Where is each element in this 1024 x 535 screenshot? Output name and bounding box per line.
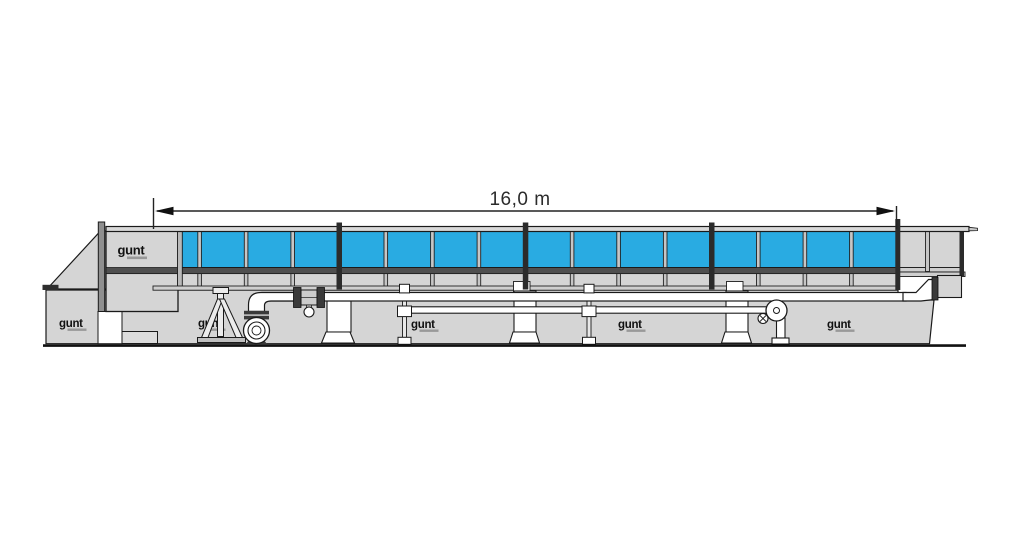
outlet-flange: [932, 278, 938, 301]
flume-diagram: gunt gunt gunt gunt gunt gunt: [0, 0, 1024, 535]
glass-post: [570, 232, 574, 291]
glass-post: [244, 232, 248, 291]
outlet-rail: [898, 268, 964, 273]
gunt-logo: gunt: [411, 319, 439, 332]
drain-valve: [304, 307, 314, 317]
flume-drawing: gunt gunt gunt gunt gunt gunt: [0, 0, 1024, 535]
outlet-tank-panels: [898, 232, 964, 268]
base-notch: [98, 312, 122, 344]
gunt-logo: gunt: [618, 319, 646, 332]
blower-foot: [772, 338, 789, 344]
clamp-foot: [398, 337, 411, 344]
outlet-elbow-pipe: [903, 280, 935, 302]
gunt-logo-text: gunt: [827, 319, 851, 331]
module-post: [709, 223, 715, 290]
outlet-tank: [898, 230, 965, 302]
support-column: [322, 301, 355, 343]
gunt-logo: gunt: [827, 319, 855, 332]
channel-bed-frame: [106, 268, 898, 274]
gunt-logo-text: gunt: [59, 318, 83, 330]
gunt-logo-underline: [627, 330, 646, 332]
gunt-logo-underline: [127, 257, 147, 260]
arrowhead-left: [155, 207, 174, 215]
module-post: [337, 223, 343, 290]
column-foot: [322, 332, 355, 343]
gunt-logo-underline: [68, 329, 87, 331]
inlet-box-post: [178, 232, 183, 291]
top-rail-lip: [969, 227, 978, 231]
glass-post: [850, 232, 854, 291]
outlet-post: [926, 232, 930, 272]
coupling-flange: [317, 288, 325, 308]
gunt-logo-text: gunt: [411, 319, 435, 331]
main-return-pipe: [262, 293, 906, 302]
dimension-label: 16,0 m: [489, 189, 550, 210]
gunt-logo: gunt: [59, 318, 87, 331]
gunt-logo-text: gunt: [618, 319, 642, 331]
glass-post: [384, 232, 388, 291]
glass-post: [291, 232, 295, 291]
top-rail: [106, 227, 978, 232]
hanger-rod: [587, 316, 591, 338]
outlet-chamber: [938, 276, 962, 298]
glass-post: [477, 232, 481, 291]
pump-hub: [252, 326, 261, 335]
clamp-foot: [583, 337, 596, 344]
glass-post: [617, 232, 621, 291]
coupling-flange: [294, 288, 302, 308]
module-post: [523, 223, 529, 290]
top-rail-bar: [106, 227, 969, 232]
rail-clamp: [400, 284, 410, 293]
inlet-standpipe: [98, 222, 104, 312]
channel-end-post: [895, 219, 900, 290]
blower-hub: [774, 308, 780, 314]
pipe-clamp: [582, 306, 596, 317]
gunt-logo-underline: [420, 330, 439, 332]
inlet-plinth: [122, 332, 158, 344]
glass-post: [803, 232, 807, 291]
glass-post: [198, 232, 202, 291]
glass-post: [431, 232, 435, 291]
arrowhead-right: [877, 207, 896, 215]
gunt-logo-underline: [836, 330, 855, 332]
column-head: [727, 282, 744, 292]
pipe-clamp: [398, 306, 412, 317]
column-foot: [510, 332, 540, 343]
pump-flange: [244, 311, 269, 315]
outlet-end-post: [960, 230, 965, 277]
gunt-logo: gunt: [118, 243, 148, 260]
inlet-sloped-wall: [47, 231, 106, 289]
rail-clamp: [584, 284, 594, 293]
hanger-rod: [403, 316, 407, 338]
column-foot: [722, 332, 752, 343]
slope-eave: [43, 285, 59, 290]
glass-post: [757, 232, 761, 291]
glass-post: [663, 232, 667, 291]
tripod-base-plate: [198, 338, 246, 343]
tripod-top-plate: [213, 288, 229, 294]
column-stem: [327, 301, 351, 332]
gunt-logo-text: gunt: [118, 243, 146, 258]
